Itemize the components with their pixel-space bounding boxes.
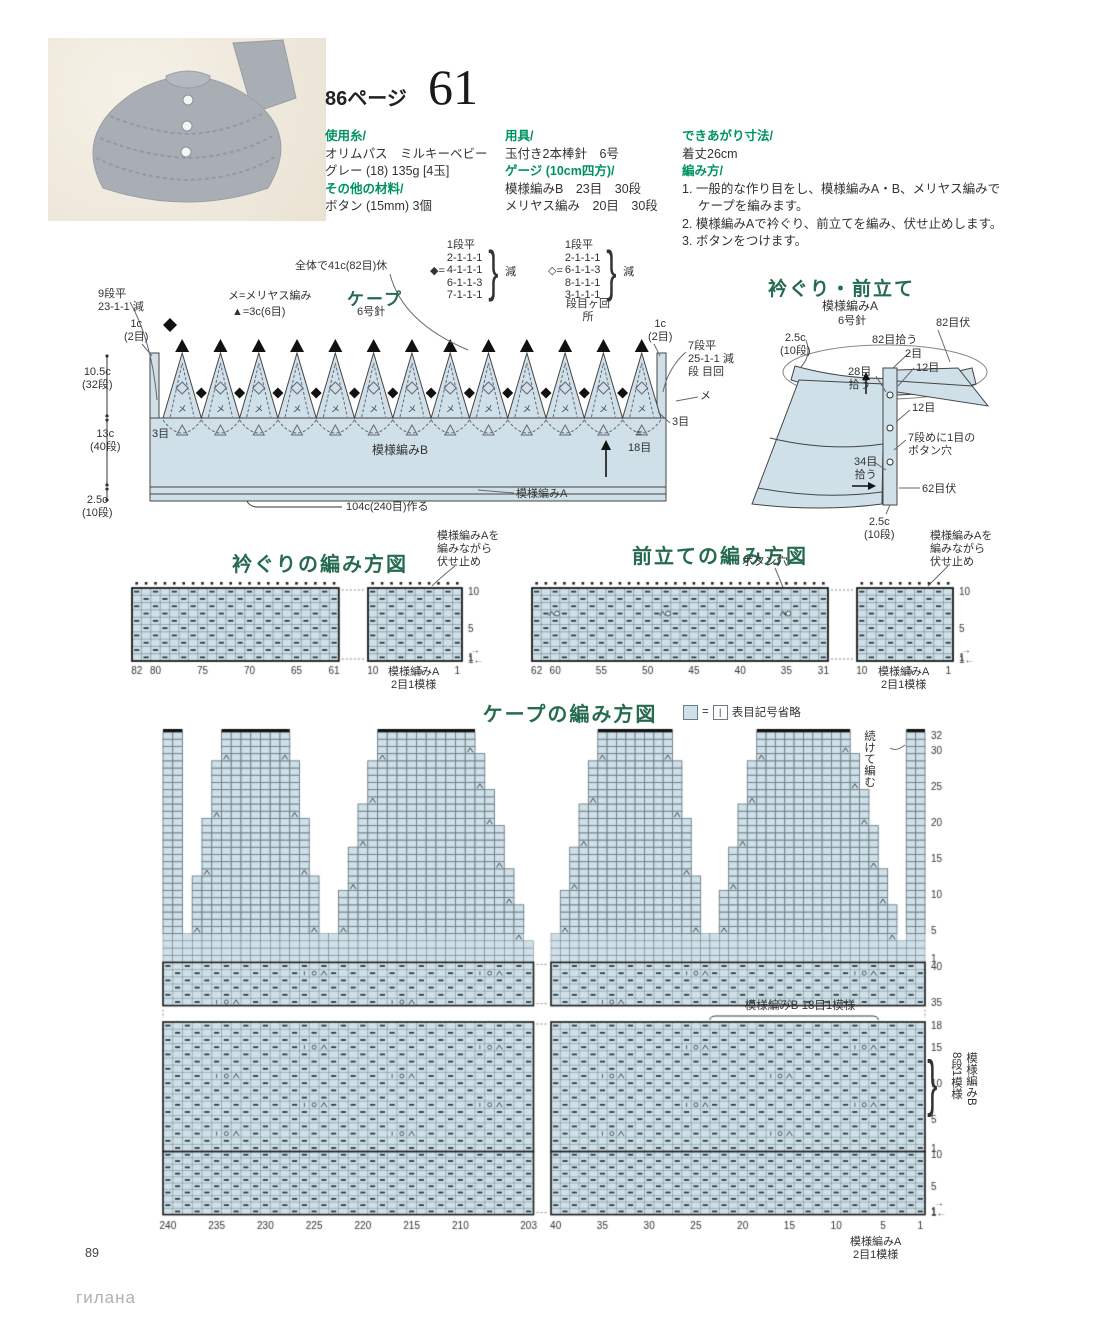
continue-knitting-label: 続けて編む bbox=[862, 730, 875, 820]
knit-cell-icon bbox=[683, 705, 698, 720]
placket-chart-title: 前立ての編み方図 bbox=[580, 540, 860, 569]
neck-needle: 6号針 bbox=[838, 315, 866, 328]
pickup-28: 28目 拾う bbox=[848, 366, 871, 392]
neck-chart-note: 模様編みAを 編みながら 伏せ止め bbox=[437, 530, 499, 569]
page-reference: 86ページ bbox=[325, 82, 407, 111]
stockinette-legend: メ=メリヤス編み bbox=[228, 290, 311, 303]
hold-stitches-note: 全体で41c(82目)休 bbox=[295, 260, 387, 273]
stockinette-mark: メ bbox=[700, 390, 711, 403]
gauge-line: 模様編みB 23目 30段 bbox=[505, 181, 685, 199]
knit-symbol-icon: | bbox=[713, 705, 728, 720]
two-stitches: 2目 bbox=[905, 348, 922, 361]
placket-chart-bottom-label: 模様編みA 2目1模様 bbox=[878, 666, 929, 692]
pickup-34: 34目 拾う bbox=[854, 456, 877, 482]
svg-text:メ: メ bbox=[178, 404, 187, 414]
brace: } bbox=[607, 238, 617, 303]
other-materials-line: ボタン (15mm) 3個 bbox=[325, 198, 503, 216]
neck-dim-top: 2.5c (10段) bbox=[780, 332, 811, 358]
svg-text:メ: メ bbox=[484, 404, 493, 414]
other-materials-heading: その他の材料/ bbox=[325, 181, 503, 199]
open-diamond-icon: ◇= bbox=[548, 264, 563, 277]
tools-gauge-column: 用具/ 玉付き2本棒針 6号 ゲージ (10cm四方)/ 模様編みB 23目 3… bbox=[505, 128, 685, 216]
edge-width-right: 1c (2目) bbox=[648, 318, 672, 344]
edge-width-left: 1c (2目) bbox=[124, 318, 148, 344]
svg-text:メ: メ bbox=[293, 404, 302, 414]
decrease-table-filled-diamond: ◆= 1段平 2-1-1-1 4-1-1-1 6-1-1-3 7-1-1-1 }… bbox=[430, 238, 516, 303]
decrease-word: 減 bbox=[623, 263, 634, 279]
cape-photo-illustration bbox=[48, 38, 326, 221]
howto-step: 2. 模様編みAで衿ぐり、前立てを編み、伏せ止めします。 bbox=[682, 216, 1022, 234]
dim-top: 10.5c (32段) bbox=[82, 366, 113, 392]
pattern-b-side-label: 模様編みB 8段1模様 bbox=[948, 1052, 978, 1162]
page-number: 89 bbox=[85, 1246, 99, 1260]
brace: } bbox=[927, 1048, 937, 1119]
svg-text:メ: メ bbox=[254, 404, 263, 414]
twelve-stitches-a: 12目 bbox=[916, 362, 939, 375]
howto-step: 1. 一般的な作り目をし、模様編みA・B、メリヤス編みで bbox=[682, 181, 1022, 199]
bindoff-62: 62目伏 bbox=[922, 483, 956, 496]
svg-text:メ: メ bbox=[446, 404, 455, 414]
triangle-legend: ▲=3c(6目) bbox=[232, 306, 285, 319]
decrease-rows: 1段平 2-1-1-1 4-1-1-1 6-1-1-3 7-1-1-1 bbox=[447, 239, 482, 302]
brace: } bbox=[489, 238, 499, 303]
three-stitches-left: 3目 bbox=[152, 428, 169, 441]
tools-heading: 用具/ bbox=[505, 128, 685, 146]
svg-text:メ: メ bbox=[522, 404, 531, 414]
svg-text:メ: メ bbox=[216, 404, 225, 414]
svg-text:メ: メ bbox=[369, 404, 378, 414]
svg-text:メ: メ bbox=[599, 404, 608, 414]
pattern-a-label: 模様編みA bbox=[516, 488, 567, 501]
decrease-table-open-diamond: ◇= 1段平 2-1-1-1 6-1-1-3 8-1-1-1 3-1-1-1 }… bbox=[548, 238, 634, 303]
yarn-line: グレー (18) 135g [4玉] bbox=[325, 163, 503, 181]
size-howto-column: できあがり寸法/ 着丈26cm 編み方/ 1. 一般的な作り目をし、模様編みA・… bbox=[682, 128, 1022, 251]
yarn-line: オリムパス ミルキーベビー bbox=[325, 146, 503, 164]
three-stitches-right: 3目 bbox=[672, 416, 689, 429]
svg-text:メ: メ bbox=[637, 404, 646, 414]
svg-text:メ: メ bbox=[407, 404, 416, 414]
garment-photo bbox=[48, 38, 326, 221]
cape-chart-bottom-label: 模様編みA 2目1模様 bbox=[850, 1236, 901, 1262]
cast-on-note: 104c(240目)作る bbox=[346, 501, 429, 514]
dim-mid: 13c (40段) bbox=[90, 428, 121, 454]
placket-chart-note: 模様編みAを 編みながら 伏せ止め bbox=[930, 530, 992, 569]
legend-text: 表目記号省略 bbox=[732, 704, 801, 720]
legend-equals: = bbox=[702, 706, 709, 718]
tools-line: 玉付き2本棒針 6号 bbox=[505, 146, 685, 164]
watermark: гилана bbox=[76, 1288, 136, 1308]
neck-pattern-a: 模様編みA bbox=[822, 300, 878, 313]
buttonhole-label: ボタン穴 bbox=[742, 556, 788, 569]
gauge-line: メリヤス編み 20目 30段 bbox=[505, 198, 685, 216]
svg-text:メ: メ bbox=[561, 404, 570, 414]
pattern-b-label: 模様編みB bbox=[372, 444, 428, 457]
twelve-stitches-b: 12目 bbox=[912, 402, 935, 415]
decrease-word: 減 bbox=[505, 263, 516, 279]
filled-diamond-icon: ◆= bbox=[430, 264, 445, 277]
howto-step: ケープを編みます。 bbox=[682, 198, 1022, 216]
cape-chart-legend: = | 表目記号省略 bbox=[683, 704, 801, 720]
right-decrease-note: 7段平 25-1-1 減 段 目回 bbox=[688, 340, 734, 379]
neck-dim-bottom: 2.5c (10段) bbox=[864, 516, 895, 542]
decrease-sub-note: 段目ヶ回 所 bbox=[566, 298, 610, 324]
dim-bottom: 2.5c (10段) bbox=[82, 494, 113, 520]
decrease-rows: 1段平 2-1-1-1 6-1-1-3 8-1-1-1 3-1-1-1 bbox=[565, 239, 600, 302]
buttonhole-note: 7段めに1目の ボタン穴 bbox=[908, 432, 975, 458]
item-number: 61 bbox=[428, 58, 478, 116]
cape-needle: 6号針 bbox=[357, 306, 385, 319]
pickup-82: 82目拾う bbox=[872, 334, 917, 347]
size-heading: できあがり寸法/ bbox=[682, 128, 1022, 146]
neck-diagram-title: 衿ぐり・前立て bbox=[768, 274, 915, 301]
pattern-b-repeat-label: 模様編みB 18目1模様 bbox=[700, 1000, 900, 1013]
equals-mark: = bbox=[636, 428, 642, 441]
eighteen-stitches: 18目 bbox=[628, 442, 651, 455]
gauge-heading: ゲージ (10cm四方)/ bbox=[505, 163, 685, 181]
yarn-heading: 使用糸/ bbox=[325, 128, 503, 146]
neck-chart-canvas bbox=[120, 572, 500, 684]
howto-heading: 編み方/ bbox=[682, 163, 1022, 181]
neck-chart-bottom-label: 模様編みA 2目1模様 bbox=[388, 666, 439, 692]
left-decrease-note: 9段平 23-1-1 減 bbox=[98, 288, 144, 314]
materials-column: 使用糸/ オリムパス ミルキーベビー グレー (18) 135g [4玉] その… bbox=[325, 128, 503, 216]
pattern-page: 86ページ 61 使用糸/ オリムパス ミルキーベビー グレー (18) 135… bbox=[0, 0, 1100, 1339]
howto-step: 3. ボタンをつけます。 bbox=[682, 233, 1022, 251]
svg-text:メ: メ bbox=[331, 404, 340, 414]
size-line: 着丈26cm bbox=[682, 146, 1022, 164]
bindoff-82: 82目伏 bbox=[936, 317, 970, 330]
